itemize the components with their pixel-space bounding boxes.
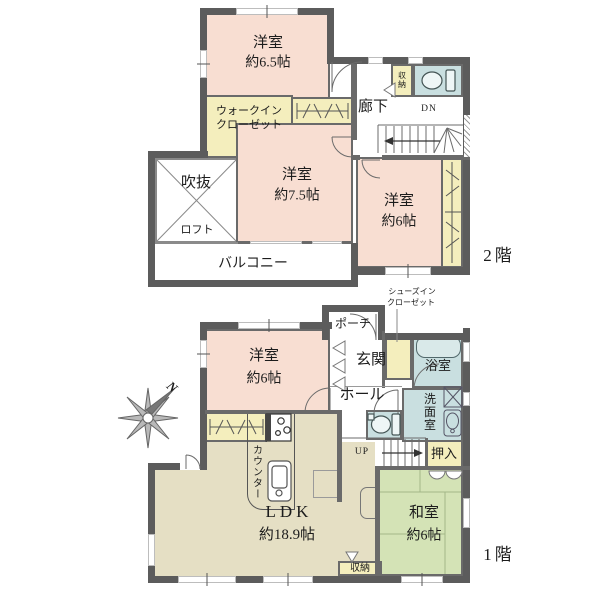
ldk-label: LDK [266, 503, 313, 521]
porch-pillar [322, 305, 329, 340]
room-1f-tatami [378, 468, 463, 576]
sic-label-2: クローゼット [387, 299, 435, 307]
window [148, 534, 155, 566]
hall-label: ホール [339, 388, 384, 404]
window [238, 322, 300, 329]
wall-segment [378, 333, 470, 340]
room-size: 約6.5帖 [245, 57, 291, 72]
closet-2f-pipe [291, 97, 353, 125]
window [463, 498, 470, 528]
window [236, 8, 298, 15]
wall-segment [327, 57, 470, 64]
room-2f-walkin-closet-ext [205, 141, 238, 158]
window [178, 576, 236, 583]
up-label: UP [355, 448, 369, 458]
room-label: 洋室 [249, 349, 279, 365]
room-size: 約7.5帖 [274, 190, 320, 205]
window [200, 340, 207, 368]
floor-label-2f: 2階 [483, 247, 515, 265]
bath-label: 浴室 [425, 359, 451, 373]
floor-plan: 洋室 約6.5帖 ウォークイン クローゼット 廊下 DN 収納 吹抜 ロフト 洋… [0, 0, 600, 600]
counter-label: カウンター [249, 445, 264, 500]
wall-segment [148, 280, 358, 287]
window [312, 241, 342, 244]
wall-segment [337, 410, 342, 502]
wall-segment [425, 438, 428, 470]
compass-north-label: N [164, 379, 180, 395]
oshiire-label: 押入 [431, 447, 457, 461]
toilet-2f-room [413, 64, 463, 97]
storage-2f-label: 収納 [397, 71, 408, 89]
ldk-floor-left [155, 470, 203, 576]
washroom-label: 洗面室 [422, 393, 439, 432]
wall-segment [375, 466, 380, 576]
entrance-label: 玄関 [356, 353, 386, 369]
void-label: 吹抜 [181, 176, 211, 192]
toilet-1f-room [366, 410, 402, 440]
stairs-down-arrow [384, 137, 440, 145]
window [385, 267, 431, 275]
wic-label-1: ウォークイン [216, 106, 282, 118]
floor-label-1f: 1階 [483, 546, 515, 564]
room-label: 洋室 [253, 36, 283, 52]
room-size: 約6帖 [247, 373, 282, 388]
room-size: 約6帖 [407, 530, 442, 545]
ldk-size: 約18.9帖 [259, 528, 315, 544]
porch-label: ポーチ [335, 318, 371, 331]
window [368, 57, 383, 64]
balcony-rail-line [155, 242, 238, 244]
room-size: 約6帖 [382, 216, 417, 231]
room-label: 和室 [409, 506, 439, 522]
window [408, 57, 423, 64]
wall-segment [463, 328, 470, 583]
balcony-label: バルコニー [218, 258, 288, 273]
wall-segment [148, 151, 208, 158]
compass-icon [118, 388, 178, 448]
fridge-space [313, 470, 339, 498]
room-1f-western-6 [205, 329, 330, 412]
dn-label: DN [421, 105, 437, 115]
porch-wall [322, 305, 385, 312]
wall-segment [200, 8, 207, 158]
wall-segment [382, 155, 470, 160]
window [401, 576, 443, 583]
sic-label-1: シューズイン [388, 288, 436, 296]
corridor-label: 廊下 [358, 100, 388, 116]
wall-segment [205, 410, 342, 414]
window [250, 241, 302, 244]
window [200, 50, 207, 78]
window [463, 342, 470, 362]
wall-segment [148, 463, 180, 470]
room-label: 洋室 [384, 194, 414, 210]
window [463, 392, 470, 406]
wall-segment [148, 151, 155, 287]
wall-segment [375, 466, 470, 470]
storage-1f-label: 収納 [350, 564, 370, 575]
wall-segment [351, 155, 360, 160]
closet-2f-right-pipe [441, 157, 463, 268]
room-label: 洋室 [282, 168, 312, 184]
shoes-in-closet [385, 333, 412, 380]
wall-segment [327, 8, 334, 64]
wall-segment [351, 243, 358, 287]
loft-label: ロフト [181, 225, 214, 237]
room-2f-western-6 [356, 157, 443, 268]
window [263, 576, 313, 583]
wall-segment [463, 57, 470, 275]
wic-label-2: クローゼット [216, 120, 282, 132]
stairs-up-arrow [382, 449, 423, 457]
stairs-down-2f [378, 125, 463, 153]
shaft-hatch [464, 115, 470, 157]
wall-segment [351, 64, 357, 140]
